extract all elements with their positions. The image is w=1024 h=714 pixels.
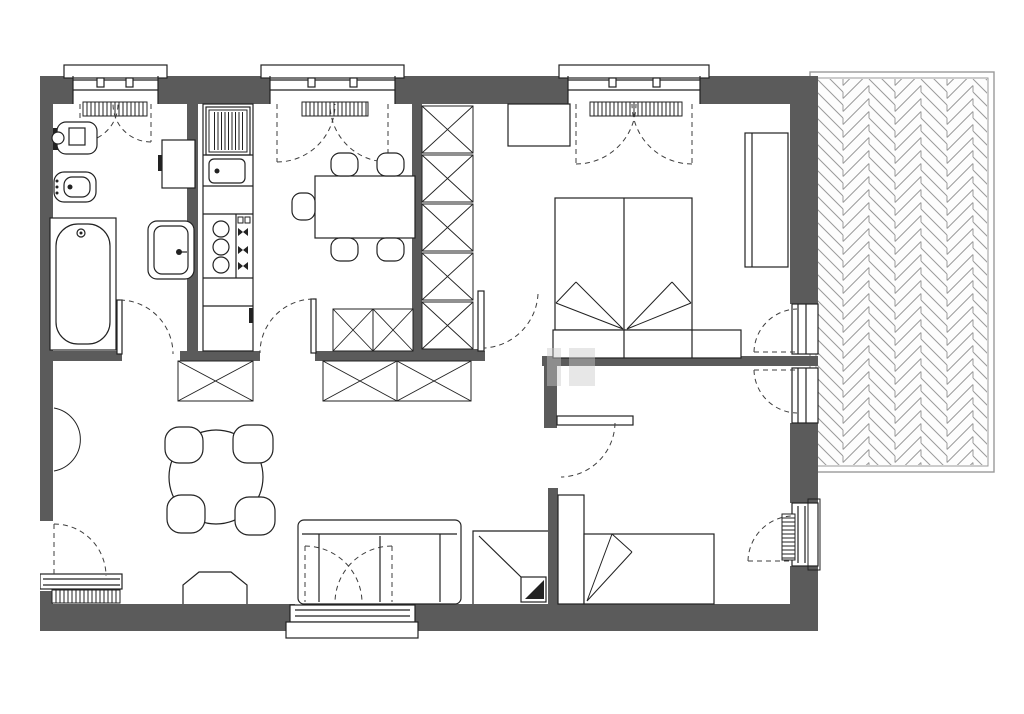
dining-chair [377, 153, 404, 176]
kitchen-door-leaf [311, 299, 316, 353]
bottom-wall-a [40, 604, 295, 631]
window-frame [290, 605, 415, 622]
radiator [52, 590, 120, 603]
footstool [183, 572, 247, 604]
window-mullion [653, 78, 660, 87]
hall-door-leaf [478, 291, 484, 351]
chair [165, 427, 203, 463]
bidet-tap [56, 186, 59, 189]
shelf [508, 104, 570, 146]
stove-burner [213, 257, 229, 273]
window-sill [261, 65, 404, 78]
washing-machine [162, 140, 195, 188]
window-mullion [609, 78, 616, 87]
top-wall-b [158, 76, 270, 104]
floor-plan-svg [40, 16, 1024, 698]
right-wall-a [790, 76, 818, 304]
bottom-wall-b [412, 604, 818, 631]
dining-chair [331, 153, 358, 176]
window-sill [559, 65, 709, 78]
wardrobe-shelf [557, 416, 633, 425]
washbasin-bowl [154, 226, 188, 274]
watermark [547, 348, 561, 386]
kitchen-sink [209, 159, 245, 183]
chair [235, 497, 275, 535]
bathtub-faucet-dot [80, 232, 83, 235]
sink-tap [215, 169, 220, 174]
counter-handle [249, 308, 253, 323]
bath-south-wall-b [180, 351, 260, 361]
dining-chair [377, 238, 404, 261]
nightstand [558, 495, 584, 604]
toilet-valve [52, 132, 64, 144]
radiator [782, 514, 795, 560]
washing-machine-door [158, 155, 162, 171]
bathtub-basin [56, 224, 110, 344]
chair [167, 495, 205, 533]
stove-burner [213, 239, 229, 255]
fireplace-wall-stub [548, 488, 558, 604]
single-bed [584, 534, 714, 604]
stove-burner [213, 221, 229, 237]
bathroom-door-leaf [117, 300, 122, 354]
window-mullion [308, 78, 315, 87]
right-wall-b [790, 423, 818, 503]
dining-table [315, 176, 415, 238]
radiator-fins [87, 102, 143, 116]
window-sill [64, 65, 167, 78]
window-sill [286, 622, 418, 638]
window-mullion [126, 78, 133, 87]
top-wall-c [395, 76, 568, 104]
window-mullion [97, 78, 104, 87]
floor-plan [40, 16, 1024, 698]
bidet-tap [56, 180, 59, 183]
dining-chair [331, 238, 358, 261]
balcony-window [40, 574, 122, 589]
terrace-door-frame [792, 304, 818, 354]
chair [233, 425, 273, 463]
toilet-bowl [69, 128, 85, 145]
right-wall-c [790, 566, 818, 631]
terrace-door-frame [792, 368, 818, 423]
bidet-drain [68, 185, 73, 190]
bidet-tap [56, 192, 59, 195]
watermark [569, 348, 595, 386]
dining-chair [292, 193, 315, 220]
window-mullion [350, 78, 357, 87]
bath-south-wall-a [40, 351, 122, 361]
